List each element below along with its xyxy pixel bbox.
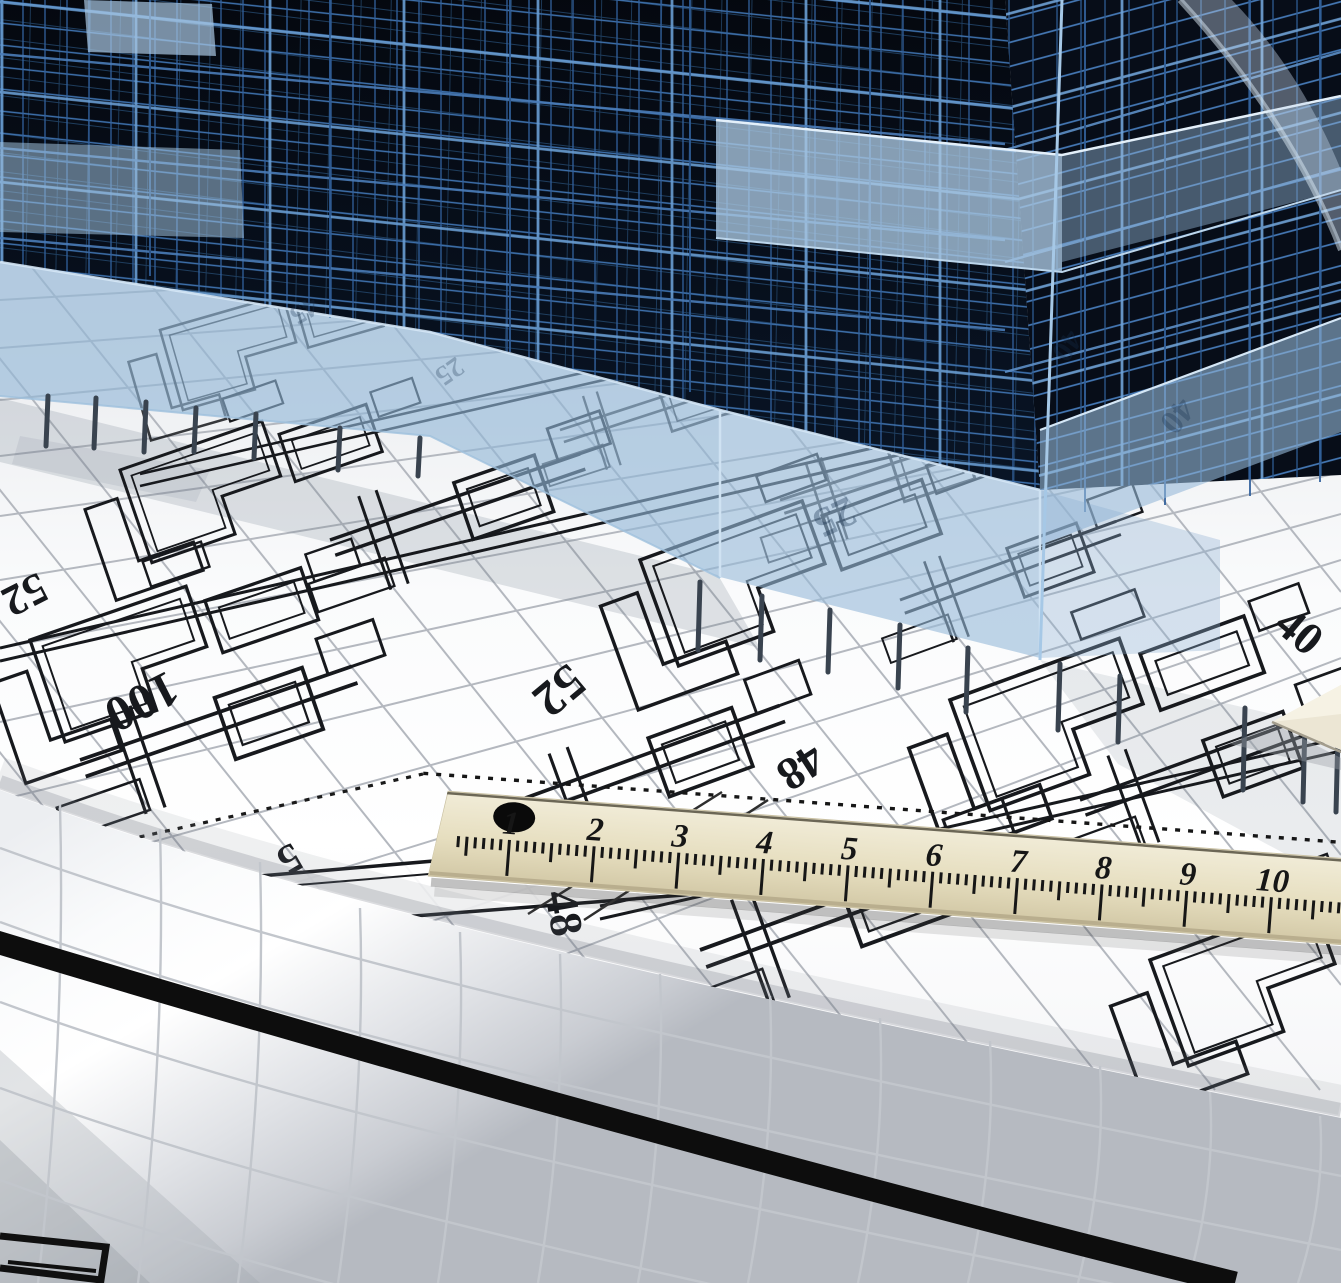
ruler-number: 4 bbox=[754, 824, 774, 861]
slab-top-left-small bbox=[84, 0, 216, 56]
ruler-number: 6 bbox=[924, 837, 944, 874]
ruler-number: 10 bbox=[1255, 862, 1291, 900]
ruler-number: 8 bbox=[1094, 850, 1113, 887]
scene-canvas: 52 100 52 48 40 5 48 7 bbox=[0, 0, 1341, 1283]
ruler-number: 3 bbox=[669, 818, 689, 855]
ruler-number: 2 bbox=[585, 812, 605, 849]
ruler-number: 5 bbox=[840, 831, 859, 868]
slab-left-mid bbox=[0, 142, 244, 238]
blueprint-scene: 52 100 52 48 40 5 48 7 bbox=[0, 0, 1341, 1283]
ruler-number: 1 bbox=[501, 805, 520, 842]
ruler-number: 9 bbox=[1178, 856, 1197, 893]
